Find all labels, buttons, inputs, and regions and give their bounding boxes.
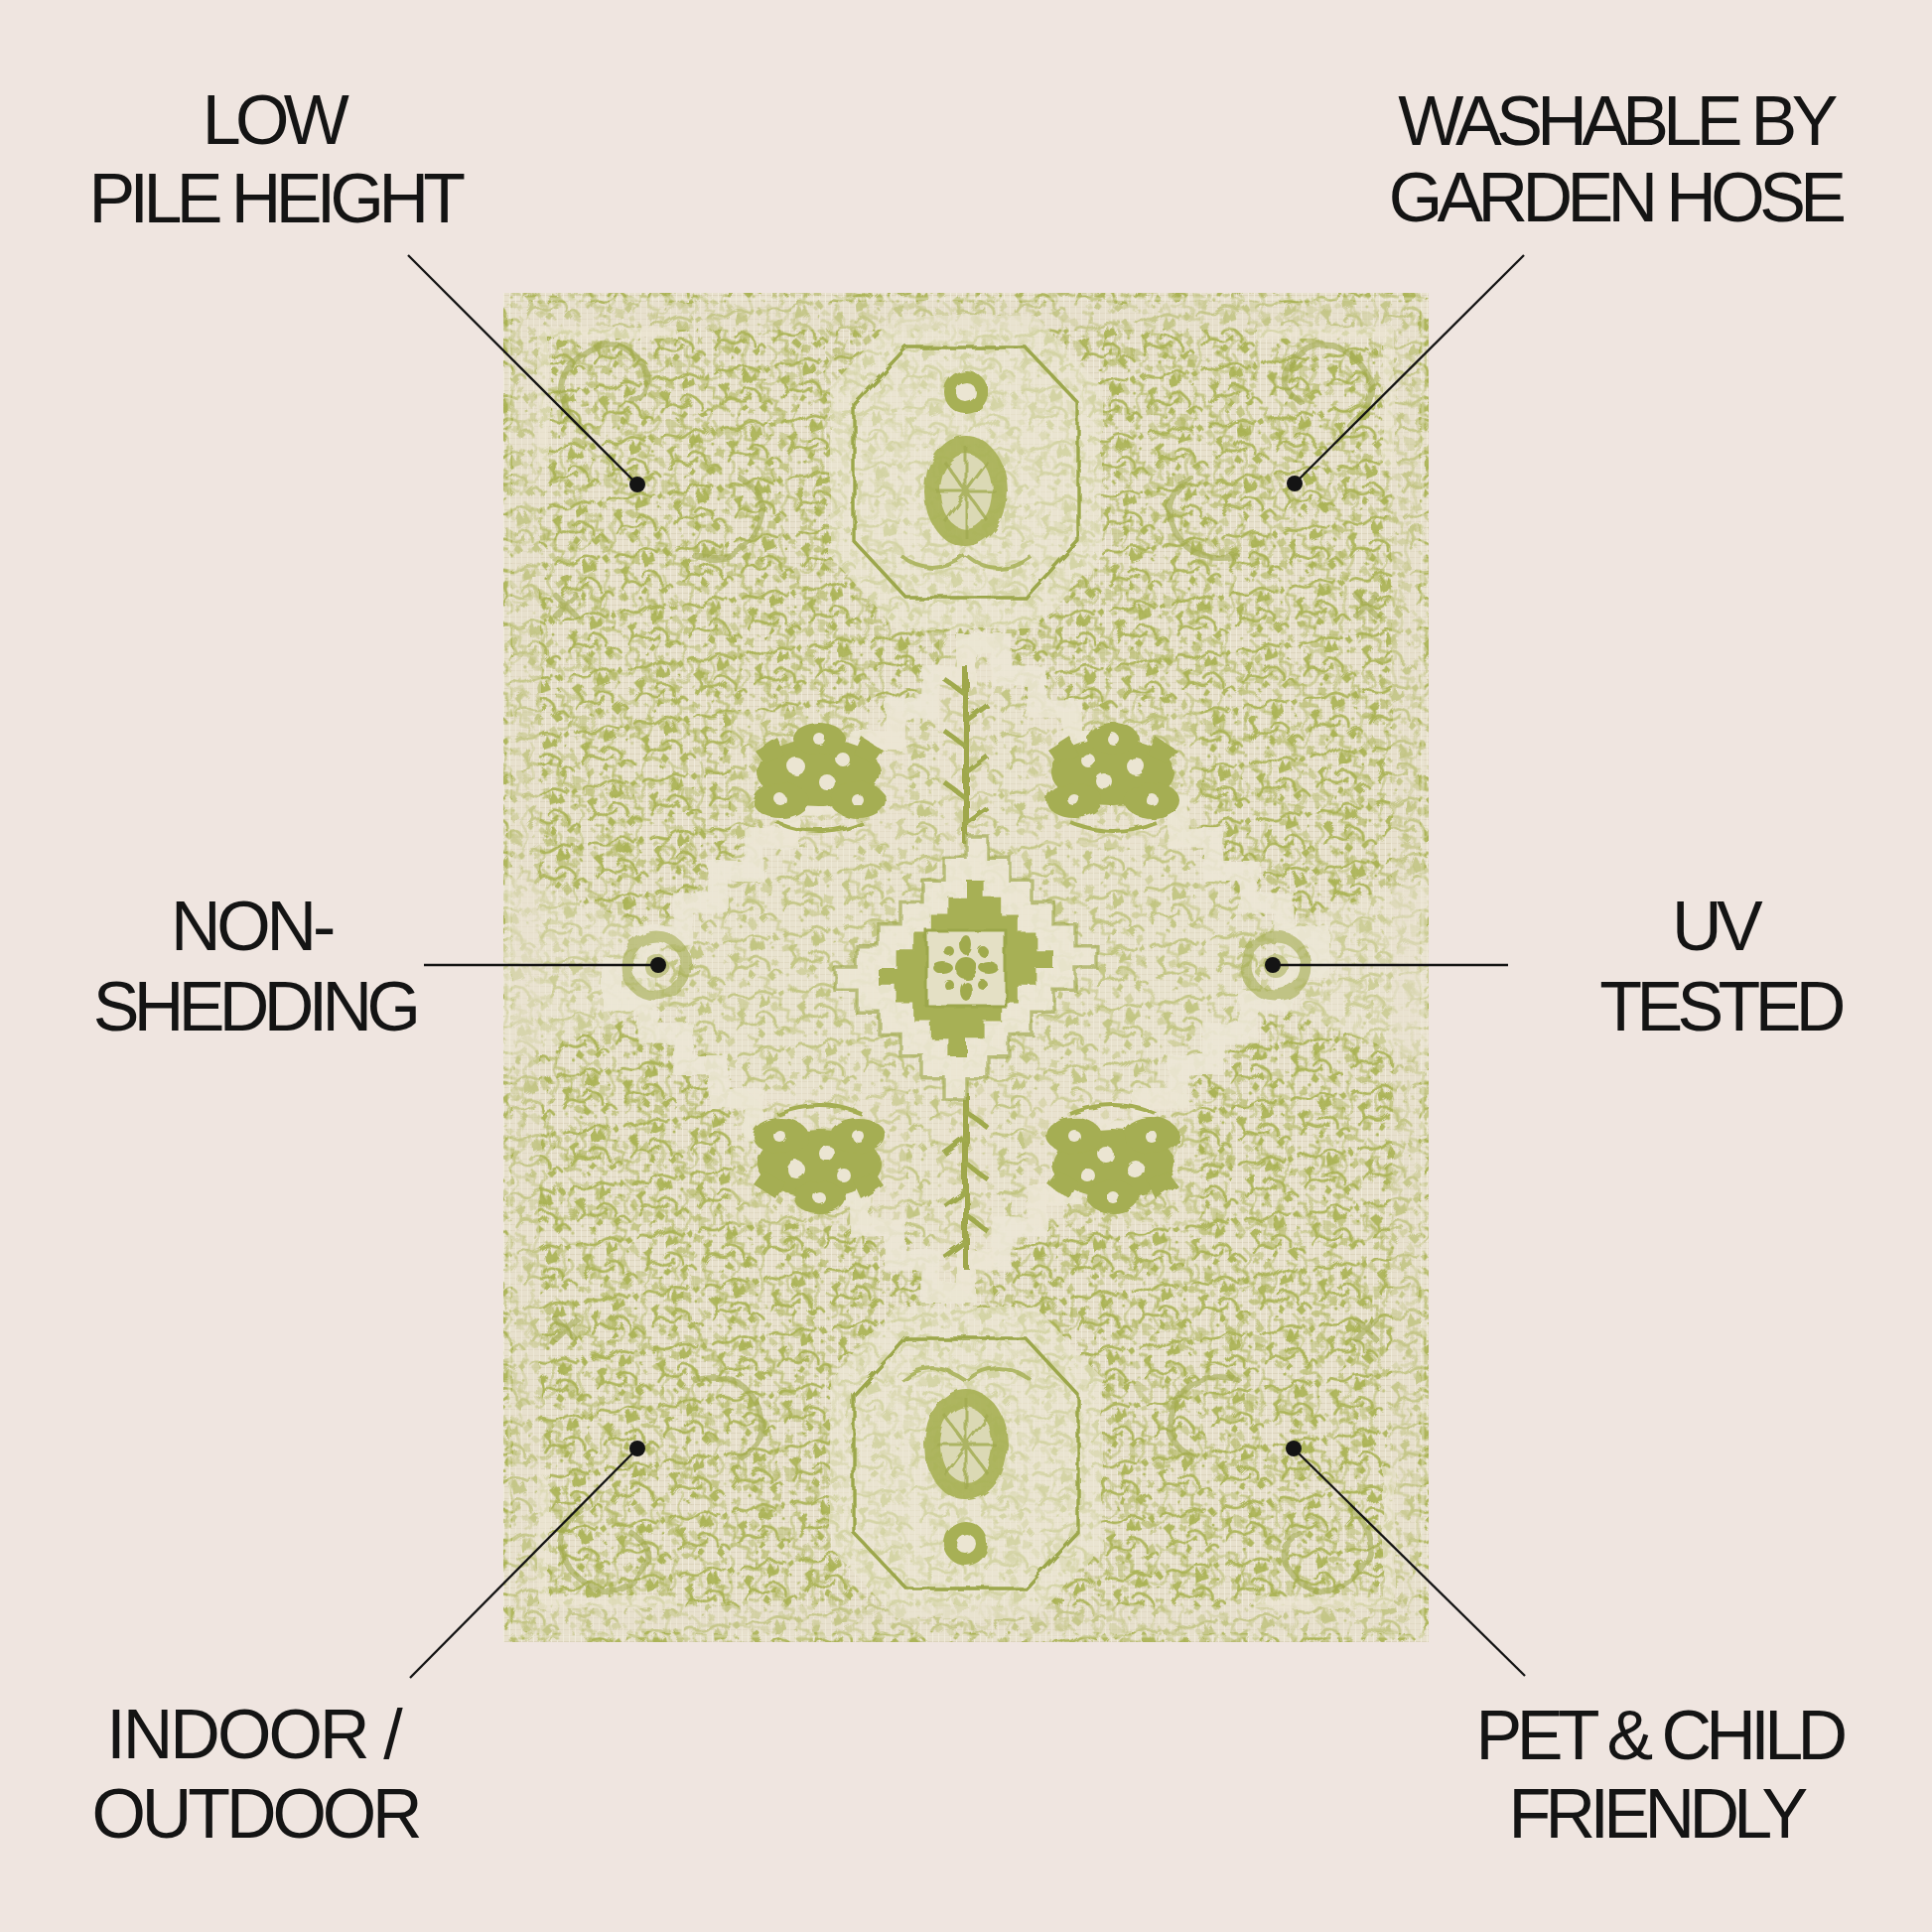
svg-text:NON-: NON-: [171, 888, 334, 965]
svg-text:OUTDOOR: OUTDOOR: [91, 1775, 420, 1853]
svg-text:INDOOR /: INDOOR /: [106, 1696, 403, 1773]
svg-text:GARDEN HOSE: GARDEN HOSE: [1389, 159, 1845, 236]
svg-text:LOW: LOW: [203, 81, 349, 159]
svg-text:SHEDDING: SHEDDING: [93, 968, 417, 1045]
svg-text:UV: UV: [1672, 888, 1763, 965]
svg-text:FRIENDLY: FRIENDLY: [1508, 1775, 1807, 1853]
svg-text:PILE HEIGHT: PILE HEIGHT: [88, 160, 465, 237]
svg-text:PET & CHILD: PET & CHILD: [1476, 1697, 1846, 1774]
svg-text:TESTED: TESTED: [1599, 968, 1844, 1045]
svg-text:WASHABLE BY: WASHABLE BY: [1398, 82, 1838, 160]
